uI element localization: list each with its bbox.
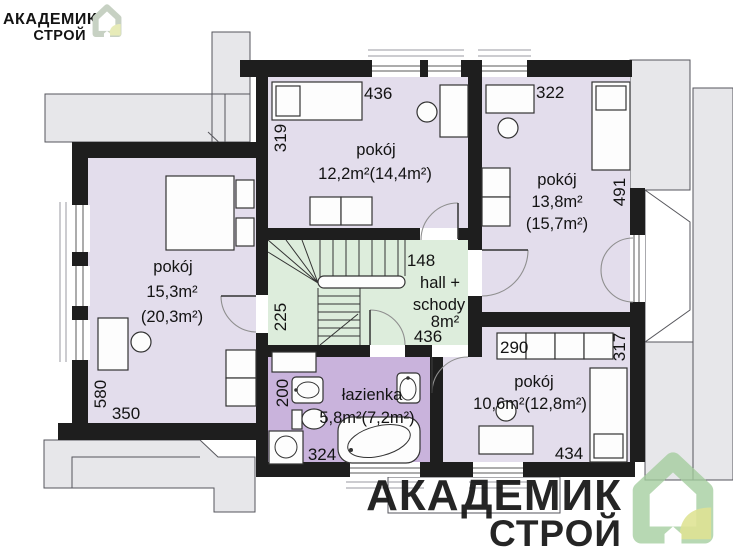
room-bottom-right-area: 10,6m²(12,8m²) [473,395,587,413]
dim-bottom-right-width: 434 [555,444,583,463]
room-left-area: 15,3m² [146,283,198,301]
bed-blanket [594,434,623,458]
wardrobe [482,168,510,197]
room-left-area-gross: (20,3m²) [141,308,203,326]
hall-label-line2: schody [413,296,466,314]
bathroom-area: 5,8m²(7,2m²) [319,409,414,427]
room-top-middle-label: pokój [356,141,395,159]
hall-label-line1: hall + [420,274,460,292]
washing-machine-icon [269,431,303,464]
nightstand [236,180,254,208]
watermark-logo-top-left: АКАДЕМИК СТРОЙ [3,7,121,44]
dim-bathroom-width: 324 [308,445,336,464]
room-top-right-label: pokój [537,171,576,189]
washbasin-icon [292,377,323,403]
room-bottom-right-label: pokój [514,373,553,391]
stair-handrail [318,276,405,288]
wardrobe [226,350,256,378]
watermark-logo-bottom-right: АКАДЕМИК СТРОЙ [366,461,711,548]
bed-pillow [596,86,626,110]
chair [498,118,518,138]
dim-bathroom-side: 200 [273,379,292,407]
bed-pillow [276,86,300,116]
dim-left-room-width: 350 [112,404,140,423]
desk [486,85,534,113]
wardrobe [341,197,372,225]
floor-plan-page: pokój 15,3m² (20,3m²) pokój 12,2m²(14,4m… [0,0,733,548]
desk [440,85,468,137]
room-top-right-area: 13,8m² [531,193,583,211]
desk [479,426,533,454]
wardrobe [584,333,613,359]
dim-top-middle-width: 436 [364,84,392,103]
balcony [645,190,690,342]
wardrobe [555,333,584,359]
brand-sub: СТРОЙ [489,512,622,548]
dim-top-right-depth: 491 [610,178,629,206]
dim-top-right-width: 322 [536,83,564,102]
bathroom-cabinet [272,352,316,372]
dim-hall-width: 148 [407,251,435,270]
chair [417,102,437,122]
brand-name: АКАДЕМИК [3,11,97,28]
wardrobe [482,197,510,226]
desk [98,318,128,370]
nightstand [236,218,254,246]
dim-wardrobe-width: 290 [500,338,528,357]
brand-sub: СТРОЙ [33,26,86,44]
wardrobe [310,197,341,225]
house-icon [96,7,121,38]
room-top-right-area-gross: (15,7m²) [526,215,588,233]
room-top-middle-area: 12,2m²(14,4m²) [318,165,432,183]
dim-top-middle-depth: 319 [271,124,290,152]
room-left-label: pokój [153,258,192,276]
wardrobe [226,378,256,406]
wardrobe [526,333,555,359]
bathroom-label: łazienka [342,386,403,404]
chair [131,332,151,352]
dim-left-room-depth: 580 [91,380,110,408]
dim-hall-length: 436 [414,327,442,346]
floor-plan-drawing: pokój 15,3m² (20,3m²) pokój 12,2m²(14,4m… [0,0,733,548]
dim-hall-side: 225 [271,303,290,331]
dim-wardrobe-side: 317 [610,333,629,361]
double-bed [166,176,234,250]
